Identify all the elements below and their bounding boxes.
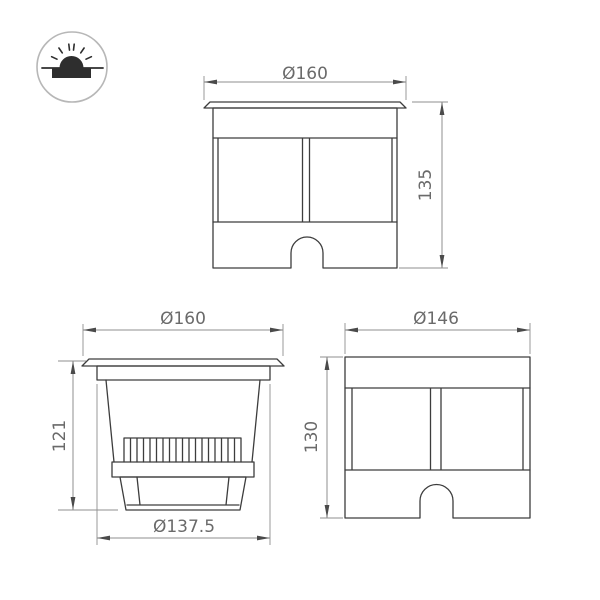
lens-window-lines	[345, 388, 530, 470]
bottom-housing-detail	[127, 477, 239, 505]
dim-label-flange: Ø160	[160, 309, 206, 329]
lens-window-lines	[213, 138, 397, 222]
view-front-with-flange: Ø160 135	[204, 64, 448, 268]
body-outline	[213, 108, 397, 268]
extension-lines	[204, 76, 448, 268]
heatsink-fins	[124, 438, 241, 462]
dim-label-body: Ø137.5	[153, 517, 215, 537]
collar-outline	[97, 366, 270, 380]
base-band	[112, 462, 254, 477]
view-side-section: Ø160 121 Ø137.5	[50, 309, 284, 545]
extension-lines	[58, 324, 283, 545]
flange-outline	[204, 102, 406, 108]
icon-housing	[52, 69, 91, 79]
dim-label-width: Ø146	[413, 309, 459, 329]
technical-drawing-sheet: Ø160 135 Ø160 121 Ø137.5 Ø146 130	[0, 0, 600, 600]
dim-label-height: 130	[302, 421, 322, 453]
flange-outline	[82, 359, 284, 366]
body-outline	[345, 357, 530, 518]
dim-label-depth: 121	[50, 420, 70, 452]
dim-label-height: 135	[416, 169, 436, 201]
drawing-canvas: Ø160 135 Ø160 121 Ø137.5 Ø146 130	[0, 0, 600, 600]
inground-light-icon	[37, 32, 107, 102]
view-body-front: Ø146 130	[302, 309, 530, 518]
dim-label-width: Ø160	[282, 64, 328, 84]
